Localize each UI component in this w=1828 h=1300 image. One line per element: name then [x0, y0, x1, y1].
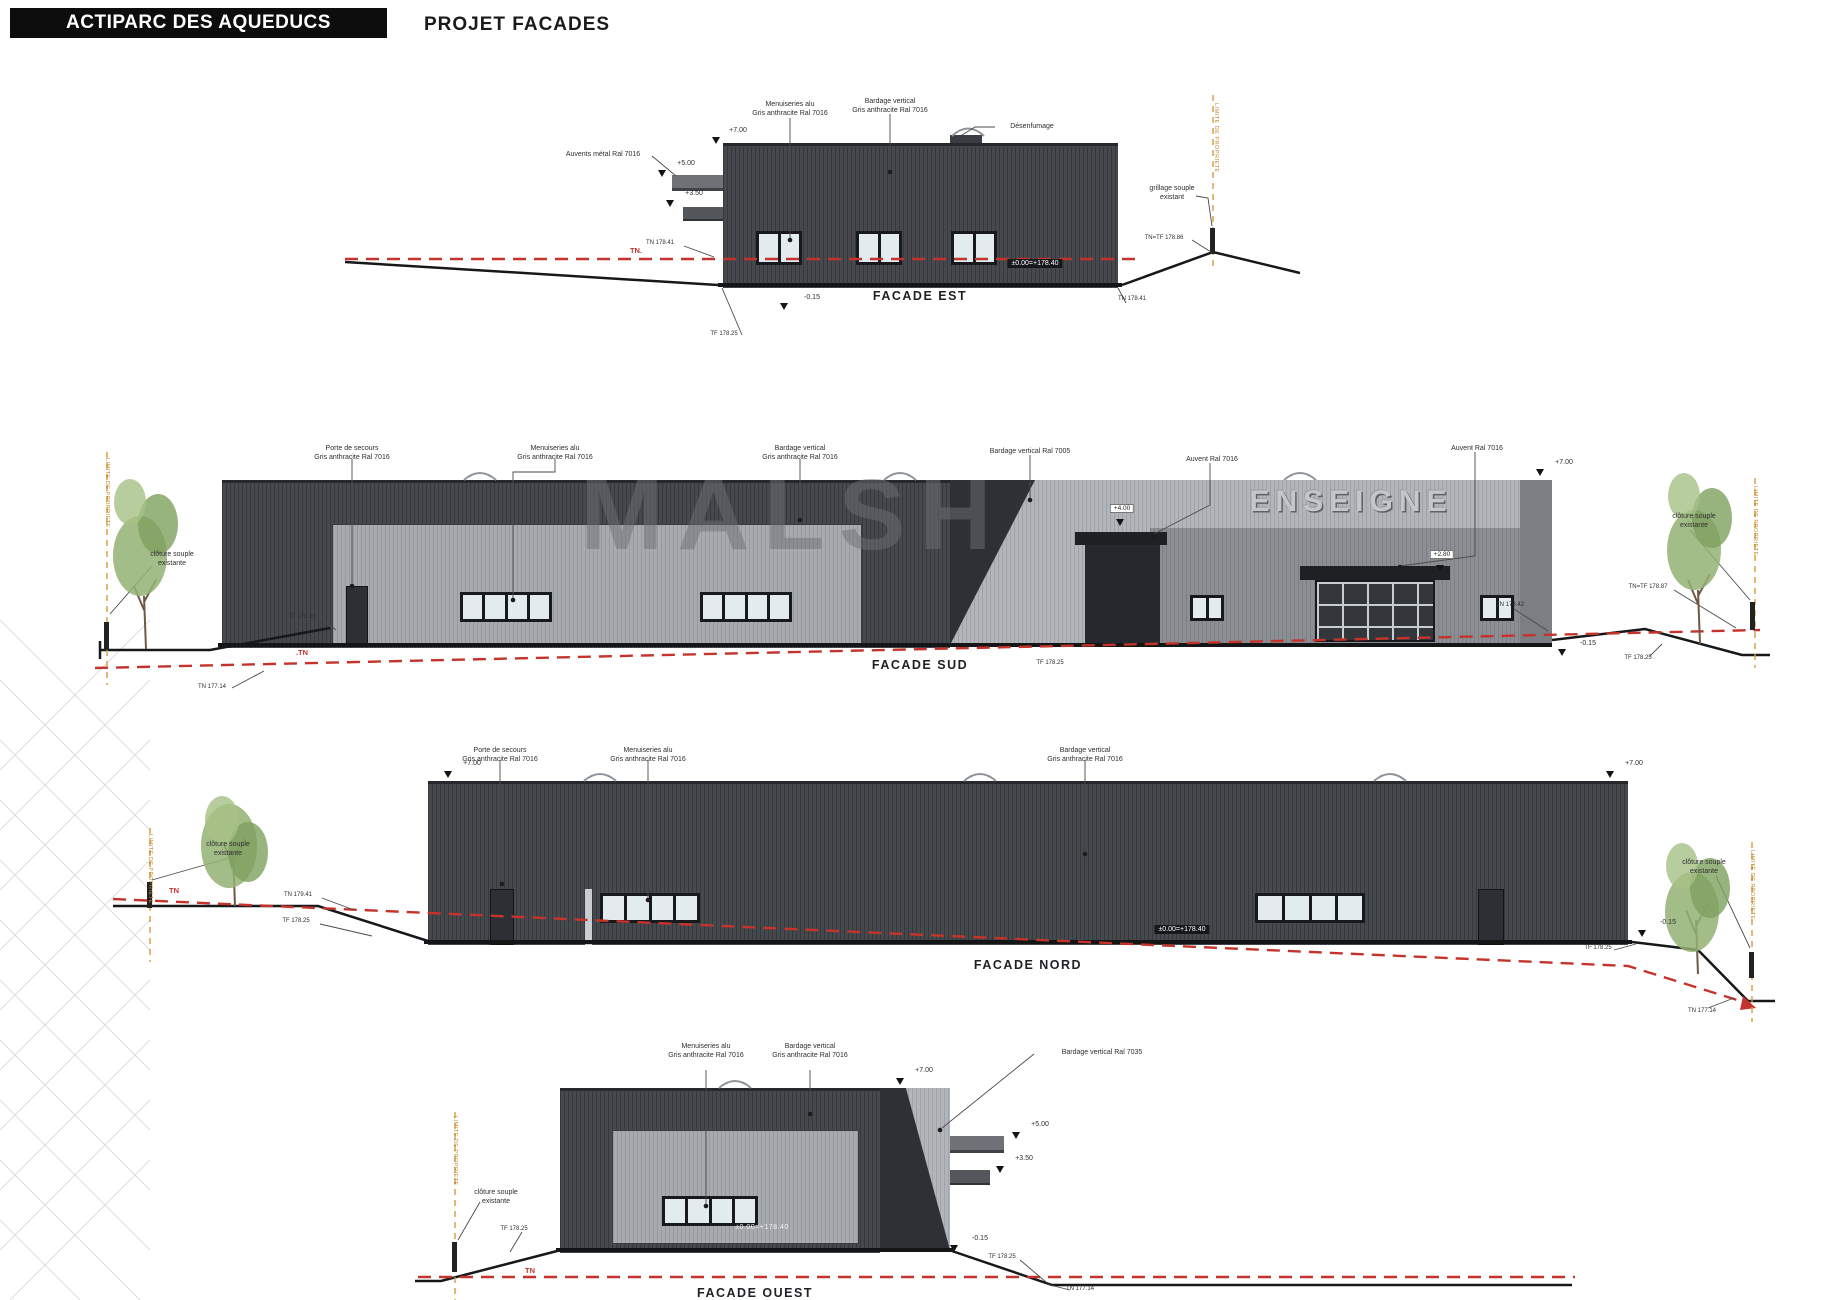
- label-est-tf-left: TF 178.25: [710, 331, 737, 339]
- label-ouest-minus015: -0.15: [972, 1234, 988, 1243]
- label-est-grillage: grillage souple existant: [1149, 184, 1194, 202]
- label-ouest-tn-right: TN 177.14: [1066, 1286, 1094, 1294]
- label-sud-limite-right: LIMITE DE PROPRIETE: [1752, 486, 1758, 556]
- sud-entrance-glazing: [1315, 580, 1435, 642]
- label-sud-cloture-right: clôture souple existante: [1672, 512, 1716, 530]
- awning-lower-est: [683, 207, 723, 221]
- label-nord-cloture-left: clôture souple existante: [206, 840, 250, 858]
- level-marker-ouest-500: [1012, 1132, 1020, 1139]
- sud-window-small-1: [1190, 595, 1224, 621]
- level-marker-ouest-0: [950, 1245, 958, 1252]
- level-sud-700: +7.00: [1555, 458, 1573, 467]
- level-est-350: +3.50: [685, 189, 703, 198]
- drawing-sheet: ACTIPARC DES AQUEDUCS PROJET FACADES MAL…: [0, 0, 1828, 1300]
- nord-window-strip-1: [600, 893, 700, 923]
- label-sud-minus015: -0.15: [1580, 639, 1596, 648]
- level-nord-700-left: +7.00: [463, 759, 481, 768]
- label-est-tn-tf: TN=TF 178.86: [1145, 235, 1184, 243]
- level-est-700: +7.00: [729, 126, 747, 135]
- facade-nord-building: [428, 781, 1628, 945]
- sud-exit-door: [346, 586, 368, 644]
- sud-entrance-canopy: [1300, 566, 1450, 580]
- label-est-desenfumage: Désenfumage: [1010, 122, 1054, 131]
- tree-sud-right: [1667, 473, 1732, 644]
- label-nord-limite-right: LIMITE DE PROPRIETE: [1749, 850, 1755, 920]
- window-est-2: [856, 231, 902, 265]
- label-sud-tf-right: TF 178.25: [1624, 655, 1651, 663]
- label-ouest-tf-right: TF 178.25: [988, 1254, 1015, 1262]
- label-nord-cloture-right: clôture souple existante: [1682, 858, 1726, 876]
- label-est-minus015: -0.15: [804, 293, 820, 302]
- label-ouest-tf-left: TF 178.25: [500, 1226, 527, 1234]
- nord-exit-door-1: [490, 889, 514, 945]
- label-sud-tn-right: TN 178.42: [1496, 602, 1524, 610]
- awning-lower-ouest: [950, 1170, 990, 1185]
- badge-sud-entree: +2.80: [1430, 550, 1454, 559]
- label-sud-bardage: Bardage vertical Gris anthracite Ral 701…: [762, 444, 837, 462]
- label-nord-tf-right: TF 178.25: [1584, 945, 1611, 953]
- level-marker-nord-0: [1638, 930, 1646, 937]
- label-nord-tn-left: TN 179.41: [284, 892, 312, 900]
- caption-facade-ouest: FACADE OUEST: [697, 1286, 813, 1300]
- level-ouest-350: +3.50: [1015, 1154, 1033, 1163]
- label-nord-limite-left: LIMITE DE PROPRIETE: [147, 834, 153, 904]
- label-sud-auvent-a: Auvent Ral 7016: [1186, 455, 1238, 464]
- label-est-auvents: Auvents métal Ral 7016: [566, 150, 640, 159]
- label-ouest-menuiseries: Menuiseries alu Gris anthracite Ral 7016: [668, 1042, 743, 1060]
- label-est-tn-left: TN 178.41: [646, 240, 674, 248]
- level-marker-sud-0: [1558, 649, 1566, 656]
- label-ouest-cloture: clôture souple existante: [474, 1188, 518, 1206]
- window-est-1: [756, 231, 802, 265]
- level-marker-est-0: [780, 303, 788, 310]
- nord-exit-door-2: [1478, 889, 1504, 945]
- level-ouest-500: +5.00: [1031, 1120, 1049, 1129]
- level-marker-ouest-700: [896, 1078, 904, 1085]
- label-sud-bardage7005: Bardage vertical Ral 7005: [990, 447, 1071, 456]
- label-ouest-limite: LIMITE DE PROPRIETE: [452, 1116, 458, 1186]
- label-ouest-bardage7035: Bardage vertical Ral 7035: [1062, 1048, 1143, 1057]
- label-est-limite: LIMITE DE PROPRIETE: [1213, 103, 1219, 173]
- nord-window-strip-2: [1255, 893, 1365, 923]
- label-ouest-bardage: Bardage vertical Gris anthracite Ral 701…: [772, 1042, 847, 1060]
- caption-facade-est: FACADE EST: [873, 289, 967, 303]
- label-sud-tn-tf: TN=TF 178.87: [1629, 584, 1668, 592]
- ouest-window-strip: [662, 1196, 758, 1226]
- badge-ouest-level: ±0.00=+178.40: [735, 1224, 789, 1231]
- sud-quai-canopy: [1075, 532, 1167, 545]
- badge-est-level: ±0.00=+178.40: [1007, 259, 1062, 268]
- level-marker-est-700: [712, 137, 720, 144]
- label-est-tn-line: TN.: [630, 246, 642, 255]
- label-sud-tf-caption: TF 178.25: [1036, 660, 1063, 668]
- label-nord-tn-right: TN 177.14: [1688, 1008, 1716, 1016]
- window-est-3: [951, 231, 997, 265]
- label-sud-tf-left: TF 178.25: [288, 614, 315, 622]
- awning-upper-ouest: [950, 1136, 1004, 1153]
- label-est-menuiseries: Menuiseries alu Gris anthracite Ral 7016: [752, 100, 827, 118]
- page-title: PROJET FACADES: [424, 14, 610, 36]
- level-marker-nord-700-left: [444, 771, 452, 778]
- level-marker-sud-entree: [1436, 565, 1444, 572]
- label-sud-cloture-left: clôture souple existante: [150, 550, 194, 568]
- project-title-box: ACTIPARC DES AQUEDUCS: [10, 8, 387, 38]
- level-marker-sud-quai: [1116, 519, 1124, 526]
- level-marker-ouest-350: [996, 1166, 1004, 1173]
- watermark: MALSH: [580, 458, 1006, 573]
- badge-sud-quai: +4.00: [1110, 504, 1134, 513]
- label-sud-tn-bottom: TN 177.14: [198, 684, 226, 692]
- project-title: ACTIPARC DES AQUEDUCS: [66, 12, 331, 34]
- level-est-500: +5.00: [677, 159, 695, 168]
- label-nord-bardage: Bardage vertical Gris anthracite Ral 701…: [1047, 746, 1122, 764]
- sud-window-strip-2: [700, 592, 792, 622]
- level-marker-sud-700: [1536, 469, 1544, 476]
- label-est-bardage: Bardage vertical Gris anthracite Ral 701…: [852, 97, 927, 115]
- label-nord-menuiseries: Menuiseries alu Gris anthracite Ral 7016: [610, 746, 685, 764]
- label-sud-tn-line: .TN: [296, 648, 308, 657]
- sud-window-strip-1: [460, 592, 552, 622]
- caption-facade-sud: FACADE SUD: [872, 658, 968, 672]
- nord-downspout: [585, 889, 592, 945]
- label-ouest-tn-line: TN: [525, 1266, 535, 1275]
- sud-sign-text: ENSEIGNE: [1150, 485, 1552, 519]
- level-ouest-700: +7.00: [915, 1066, 933, 1075]
- label-sud-porte: Porte de secours Gris anthracite Ral 701…: [314, 444, 389, 462]
- badge-nord-level: ±0.00=+178.40: [1154, 925, 1209, 934]
- level-marker-est-350: [666, 200, 674, 207]
- smoke-vent-est: [950, 135, 982, 143]
- level-marker-est-500: [658, 170, 666, 177]
- label-nord-minus015: -0.15: [1660, 918, 1676, 927]
- label-est-tn-right: TN 178.41: [1118, 296, 1146, 304]
- label-sud-menuiseries: Menuiseries alu Gris anthracite Ral 7016: [517, 444, 592, 462]
- level-nord-700-right: +7.00: [1625, 759, 1643, 768]
- level-marker-nord-700-right: [1606, 771, 1614, 778]
- sud-quai-door: [1085, 545, 1160, 645]
- label-nord-tn-line: TN: [169, 886, 179, 895]
- caption-facade-nord: FACADE NORD: [974, 958, 1082, 972]
- label-nord-tf-left: TF 178.25: [282, 918, 309, 926]
- label-sud-auvent-b: Auvent Ral 7016: [1451, 444, 1503, 453]
- label-sud-limite-left: LIMITE DE PROPRIETE: [104, 458, 110, 528]
